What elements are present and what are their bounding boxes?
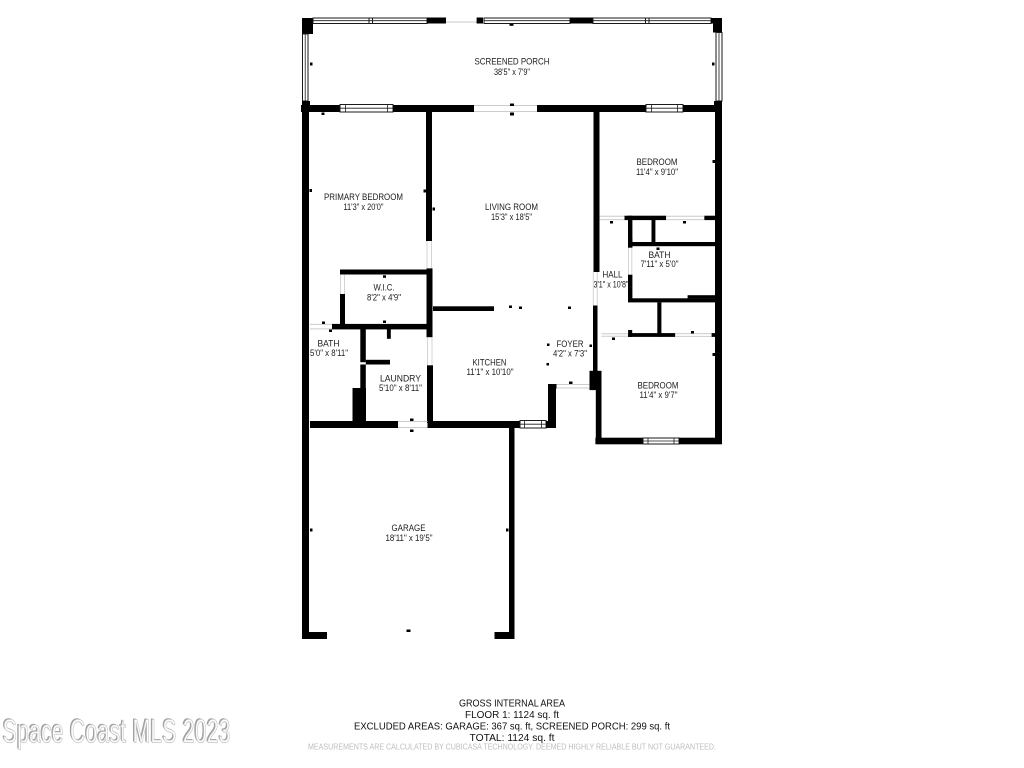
svg-text:EXCLUDED AREAS: GARAGE: 367 sq: EXCLUDED AREAS: GARAGE: 367 sq. ft, SCRE… xyxy=(354,722,670,733)
svg-text:FLOOR 1: 1124 sq. ft: FLOOR 1: 1124 sq. ft xyxy=(465,710,559,721)
svg-text:LIVING ROOM: LIVING ROOM xyxy=(485,202,538,212)
svg-text:11'4" x 9'10": 11'4" x 9'10" xyxy=(636,167,678,177)
svg-text:18'11" x 19'5": 18'11" x 19'5" xyxy=(386,533,433,543)
svg-text:W.I.C.: W.I.C. xyxy=(374,283,395,293)
svg-text:BATH: BATH xyxy=(318,339,340,349)
svg-text:BEDROOM: BEDROOM xyxy=(637,157,678,167)
svg-text:GROSS INTERNAL AREA: GROSS INTERNAL AREA xyxy=(459,699,565,710)
svg-text:11'3" x 20'0": 11'3" x 20'0" xyxy=(344,202,384,212)
svg-text:BEDROOM: BEDROOM xyxy=(638,381,679,391)
svg-text:5'10" x 8'11": 5'10" x 8'11" xyxy=(379,383,422,393)
svg-text:PRIMARY BEDROOM: PRIMARY BEDROOM xyxy=(324,192,403,202)
svg-text:MEASUREMENTS ARE CALCULATED BY: MEASUREMENTS ARE CALCULATED BY CUBICASA … xyxy=(308,743,716,752)
svg-text:5'0" x 8'11": 5'0" x 8'11" xyxy=(310,348,348,358)
svg-text:7'11" x 5'0": 7'11" x 5'0" xyxy=(641,259,679,269)
svg-text:FOYER: FOYER xyxy=(557,339,584,349)
svg-text:8'2" x 4'9": 8'2" x 4'9" xyxy=(367,293,401,303)
svg-text:LAUNDRY: LAUNDRY xyxy=(380,374,421,384)
svg-text:11'1" x 10'10": 11'1" x 10'10" xyxy=(467,367,514,377)
svg-text:GARAGE: GARAGE xyxy=(392,523,426,533)
svg-text:38'5" x 7'9": 38'5" x 7'9" xyxy=(494,67,530,77)
svg-text:SCREENED PORCH: SCREENED PORCH xyxy=(475,57,550,67)
svg-text:4'2" x 7'3": 4'2" x 7'3" xyxy=(553,349,587,359)
svg-text:11'4" x 9'7": 11'4" x 9'7" xyxy=(640,390,678,400)
svg-text:HALL: HALL xyxy=(603,270,623,280)
svg-text:3'1" x 10'8": 3'1" x 10'8" xyxy=(594,280,629,290)
svg-text:15'3" x 18'5": 15'3" x 18'5" xyxy=(491,212,532,222)
svg-text:Space Coast MLS 2023: Space Coast MLS 2023 xyxy=(3,713,231,750)
svg-text:KITCHEN: KITCHEN xyxy=(473,358,507,368)
